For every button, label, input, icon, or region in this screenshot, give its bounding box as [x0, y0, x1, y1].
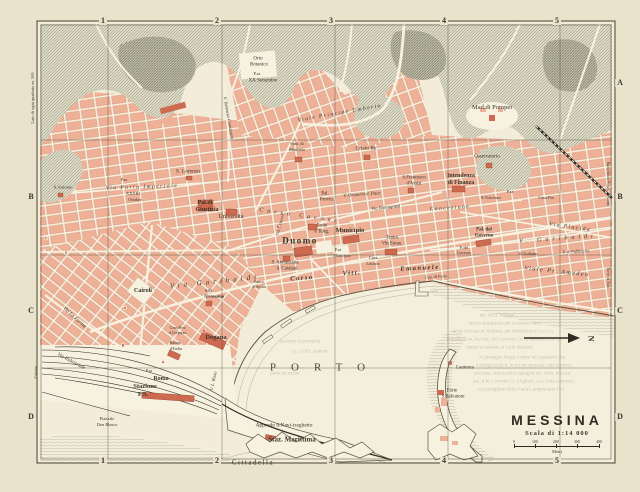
map-label: V. d. Fabbriche: [562, 249, 589, 255]
north-arrow-icon: [522, 330, 582, 346]
grid-row-a-right: A: [615, 79, 625, 87]
north-arrow: N: [522, 330, 594, 346]
label-palazzo-giustizia: Pal.di: [198, 200, 213, 206]
map-label: h: [276, 225, 280, 229]
map-label: P.za: [146, 369, 152, 373]
scale-unit: Metri: [552, 449, 562, 454]
label-approdo: Approdo d.Navi-traghetto: [255, 423, 312, 429]
map-label: g: [121, 343, 125, 347]
scale-tick: 200: [553, 439, 559, 444]
map-label: Giustizia: [195, 207, 218, 213]
map-label: P.za: [254, 72, 261, 76]
map-label: Littoria: [366, 262, 379, 266]
label-piazza-roma: Roma: [153, 376, 168, 382]
map-label: Provin.: [320, 199, 334, 204]
edge-caption-barcellona: Barcellona Pozzo di Gotto: [606, 162, 610, 206]
map-label: Piazzale: [100, 417, 115, 421]
map-label: fianco si estende la Villa Mazzini.: [466, 346, 534, 351]
map-sheet: 1234512345ABCDBCDLato di ogni quadrato m…: [0, 0, 640, 492]
map-label: Governo: [475, 234, 494, 239]
edge-caption-torre-di-faro: Torre di Faro: [606, 267, 610, 289]
map-label: F.S.: [138, 392, 148, 399]
label-cristo-re: Cristo Re: [356, 146, 377, 152]
map-label: parte ad alcuni: [270, 372, 299, 377]
map-label: secondo la primitiva: [280, 340, 321, 345]
label-municipio: Municipio: [336, 228, 365, 235]
label-capitaneria: Cap. di Porto: [425, 274, 447, 279]
map-label: Via Romagnosi: [371, 205, 400, 213]
map-label: Botanico: [250, 63, 268, 68]
grid-row-b-left: B: [26, 193, 35, 201]
title-block: MESSINA Scala di 1:14 000 0 100 200 300 …: [502, 412, 612, 453]
map-label: d'Assisi: [407, 183, 422, 188]
scale-tick: 0: [513, 439, 515, 444]
map-label: arriva alla piazza del Governo (4B),: [469, 322, 541, 327]
grid-col-3-top: 3: [327, 17, 335, 25]
grid-col-4-bottom: 4: [440, 457, 448, 465]
label-san-lorenzo: S. Lorenzo: [176, 169, 200, 175]
map-title: MESSINA: [502, 412, 612, 428]
map-label: (c. 1190), quando: [292, 350, 327, 355]
north-letter: N: [587, 336, 596, 342]
map-label: Via Industriale: [56, 352, 86, 371]
grid-col-2-top: 2: [213, 17, 221, 25]
label-stazione: Stazione: [133, 384, 156, 391]
grid-row-b-right: B: [615, 193, 624, 201]
edge-caption-catania: Catania: [34, 366, 38, 379]
map-label: di Finanza: [448, 181, 474, 187]
map-label: s'allarga sulla d. in un bel piazzale, a…: [476, 364, 571, 369]
label-banca-italia: Banca: [170, 341, 181, 345]
map-label: Governo: [457, 251, 471, 255]
grid-row-d-left: D: [26, 413, 36, 421]
map-label: di Sicilia: [252, 286, 266, 290]
grid-caption: Lato di ogni quadrato m. 500: [31, 72, 35, 123]
grid-col-1-top: 1: [99, 17, 107, 25]
map-label: Concezione: [430, 205, 471, 213]
map-label: c: [44, 236, 48, 240]
map-label: V. Oratorio d. Pace: [343, 192, 381, 199]
label-cittadella: Cittadella: [232, 460, 274, 467]
map-label: S.Vincenzo: [481, 196, 501, 200]
map-label: Vitt.: [343, 270, 362, 277]
label-orto-botanico: Orto: [253, 57, 262, 62]
map-scale-label: Scala di 1:14 000: [502, 430, 612, 437]
label-osservatorio: Osservatorio: [474, 155, 500, 160]
label-sant-antonio: S.Antonio: [54, 186, 73, 191]
street-via-garibaldi: Via Garibaldi: [170, 274, 261, 290]
map-label: S.Giuliano: [519, 252, 538, 256]
map-label: S.M.: [205, 289, 213, 293]
map-label: XX Settembre: [249, 79, 278, 84]
street-porta-imperiale: Via Porta Imperiale: [106, 184, 179, 192]
street-corso-cavour: Corso Cavour: [259, 207, 341, 224]
street-cannizzaro: V. Tommaso Cannizzaro: [222, 96, 234, 139]
map-label: f: [64, 251, 67, 255]
map-label: Sant. di: [290, 142, 303, 146]
street-la-farina: Via La Farina: [61, 306, 86, 329]
street-corso-vitt-emanuele: Corso: [290, 275, 314, 283]
map-label: Ottobre: [128, 198, 141, 202]
map-label: Vitt.Eman.: [382, 243, 403, 248]
map-label: Si prosegue lungo il mare nel quartiere …: [479, 356, 565, 361]
label-madonna-di-pompei: Mad.di Pompei: [472, 105, 512, 112]
scale-tick: 100: [532, 439, 538, 444]
map-label: d'Italia: [170, 347, 182, 351]
map-label: V. Garibaldi: [519, 233, 597, 244]
label-universita: Università: [219, 214, 244, 220]
grid-col-5-top: 5: [553, 17, 561, 25]
scale-tick: 300: [574, 439, 580, 444]
scale-bar: 0 100 200 300 400 Metri: [514, 440, 600, 453]
map-label: Emanuele: [400, 265, 440, 274]
map-label: Via Placida: [549, 222, 592, 233]
street-viale-amedeo: Viale Pr. Amedeo: [524, 266, 590, 279]
label-intendenza-finanza: Intendenza: [447, 174, 475, 180]
grid-row-d-right: D: [615, 413, 625, 421]
label-lanterna: Lanterna: [456, 366, 474, 371]
map-label: Municipio: [333, 254, 350, 258]
map-label: S.Salvatore: [442, 395, 465, 400]
map-label: b: [202, 329, 206, 333]
map-label: P.za: [335, 248, 341, 252]
scale-tick: 400: [596, 439, 602, 444]
label-casa-pia: Casa Pia: [538, 196, 553, 200]
grid-col-3-bottom: 3: [327, 457, 335, 465]
map-label: Montalto: [289, 148, 305, 152]
label-forte-salvatore: Forte: [447, 389, 458, 394]
map-label: coi padiglioni della Fiera Campionaria S…: [478, 388, 566, 393]
map-label: a: [161, 360, 165, 364]
map-label: V. L. Rizzo: [210, 371, 219, 391]
grid-col-1-bottom: 1: [99, 457, 107, 465]
map-label: d. Catalani: [277, 268, 298, 273]
grid-col-2-bottom: 2: [213, 457, 221, 465]
label-piazza-cairoli: Cairoli: [134, 288, 152, 294]
street-viale-principe-umberto: Viale Principe Umberto: [297, 104, 382, 124]
label-duomo: Duomo: [282, 237, 318, 246]
map-label: sin. il R. Convitto D. Alighieri, e la V…: [473, 380, 575, 385]
label-dogana: Dogana: [205, 335, 226, 342]
map-label: XXVIII: [126, 192, 140, 196]
map-label: nel 1853, rimasta: [480, 314, 515, 319]
label-stazione-marittima: Staz. Marittima: [268, 437, 315, 444]
map-label: P.za: [507, 190, 513, 194]
map-label: P.za: [121, 178, 127, 182]
grid-row-c-right: C: [615, 307, 625, 315]
scale-bar-line: [514, 446, 600, 447]
label-palazzo-governo: Pal. del: [476, 228, 492, 233]
map-label: Alemanna: [204, 295, 224, 300]
grid-row-c-left: C: [26, 307, 36, 315]
map-label: d.Corporaz.: [169, 332, 187, 336]
grid-col-4-top: 4: [440, 17, 448, 25]
grid-col-5-bottom: 5: [553, 457, 561, 465]
map-label: Casa: [369, 256, 378, 260]
map-label: siciliana, eroica nella battaglia del 18…: [474, 372, 571, 377]
map-label: Don Blasco: [97, 423, 118, 427]
map-label: e: [123, 306, 127, 310]
